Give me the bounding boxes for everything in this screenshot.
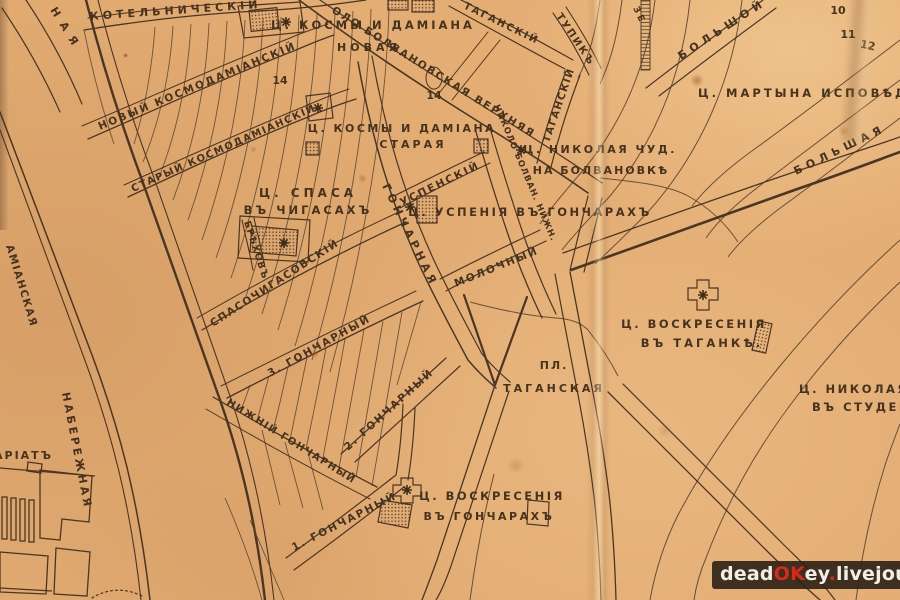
- map-canvas: КОТЕЛЬНИЧЕСКІЙ НАЯ Ц. КОСМЫ И ДАМІАНА НО…: [0, 0, 900, 600]
- church-icon: [402, 485, 412, 495]
- street-label-tagansky-vert: ТАГАНСКІЙ: [540, 66, 578, 144]
- watermark-segment: .: [829, 563, 836, 585]
- church-label-voskreseniya-tag-2: ВЪ ТАГАНКѢ.: [641, 336, 764, 350]
- paper-stain: [690, 74, 704, 87]
- river-and-embankments: [0, 0, 274, 600]
- paper-stain: [123, 53, 128, 58]
- plot-number-14a: 14: [272, 74, 288, 87]
- street-nikolo-bolvan-nizh: [476, 132, 542, 318]
- plot-number-10: 10: [830, 4, 846, 17]
- paper-stain: [358, 174, 367, 183]
- building-label-kommissariat: АРІАТЪ: [0, 449, 53, 462]
- plot-number-14b: 14: [426, 89, 442, 102]
- church-icon: [279, 238, 289, 248]
- church-label-spasa-2: ВЪ ЧИГАСАХЪ: [244, 203, 373, 217]
- screenshot-root: { "map": { "labels": { "kotelnichesky": …: [0, 0, 900, 600]
- street-label-uspensky: УСПЕНСКІЙ: [398, 159, 482, 209]
- watermark: deadOKey.livejournal.com: [712, 561, 900, 589]
- church-label-kosmy-old-2: СТАРАЯ: [379, 138, 446, 151]
- church-label-spasa-1: Ц. СПАСА: [259, 186, 357, 200]
- street-stary-kosmodamiansky: [128, 99, 356, 197]
- church-label-voskreseniya-gon-2: ВЪ ГОНЧАРАХЪ: [424, 510, 555, 523]
- street-label-amianskaya: АМІАНСКАЯ: [3, 243, 39, 328]
- map-labels: КОТЕЛЬНИЧЕСКІЙ НАЯ Ц. КОСМЫ И ДАМІАНА НО…: [0, 0, 900, 554]
- paper-stain: [838, 126, 849, 136]
- watermark-segment: dead: [720, 563, 774, 585]
- street-goncharnaya: [358, 62, 496, 388]
- church-label-kosmy-old-1: Ц. КОСМЫ И ДАМІАНА: [308, 122, 496, 135]
- paper-fold-crease: [586, 0, 610, 600]
- church-label-voskreseniya-gon-1: Ц. ВОСКРЕСЕНІЯ: [419, 489, 565, 503]
- church-symbols: [279, 17, 708, 495]
- paper-stain: [311, 350, 319, 358]
- watermark-segment: OK: [774, 563, 805, 585]
- paper-stain: [250, 146, 257, 153]
- church-icon: [698, 290, 708, 300]
- square-label-pl: ПЛ.: [540, 359, 569, 372]
- street-label-kotelnichesky: КОТЕЛЬНИЧЕСКІЙ: [89, 0, 262, 23]
- church-label-voskreseniya-tag-1: Ц. ВОСКРЕСЕНІЯ: [621, 317, 767, 331]
- paper-stain: [506, 458, 526, 473]
- church-label-uspeniya: Ц. УСПЕНІЯ ВЪ ГОНЧАРАХЪ: [408, 205, 652, 219]
- watermark-segment: livejournal: [836, 563, 900, 585]
- street-label-naberezhnaya: НАБЕРЕЖНАЯ: [59, 391, 94, 510]
- street-label-stary-kosmodamiansky: СТАРЫЙ КОСМОДАМІАНСКІЙ: [129, 101, 318, 195]
- church-label-nikolaya-stud-1: Ц. НИКОЛАЯ Ч: [799, 382, 900, 396]
- church-label-nikolaya-stud-2: ВЪ СТУДЕНЦ: [812, 400, 900, 414]
- street-label-naya-fragment: НАЯ: [47, 5, 85, 54]
- paper-stain: [656, 424, 674, 437]
- watermark-segment: ey: [805, 563, 829, 585]
- street-label-nizhny-goncharny: НИЖНІЙ ГОНЧАРНЫЙ: [224, 396, 358, 487]
- street-label-bolshoy: БОЛЬШОЙ: [676, 0, 769, 63]
